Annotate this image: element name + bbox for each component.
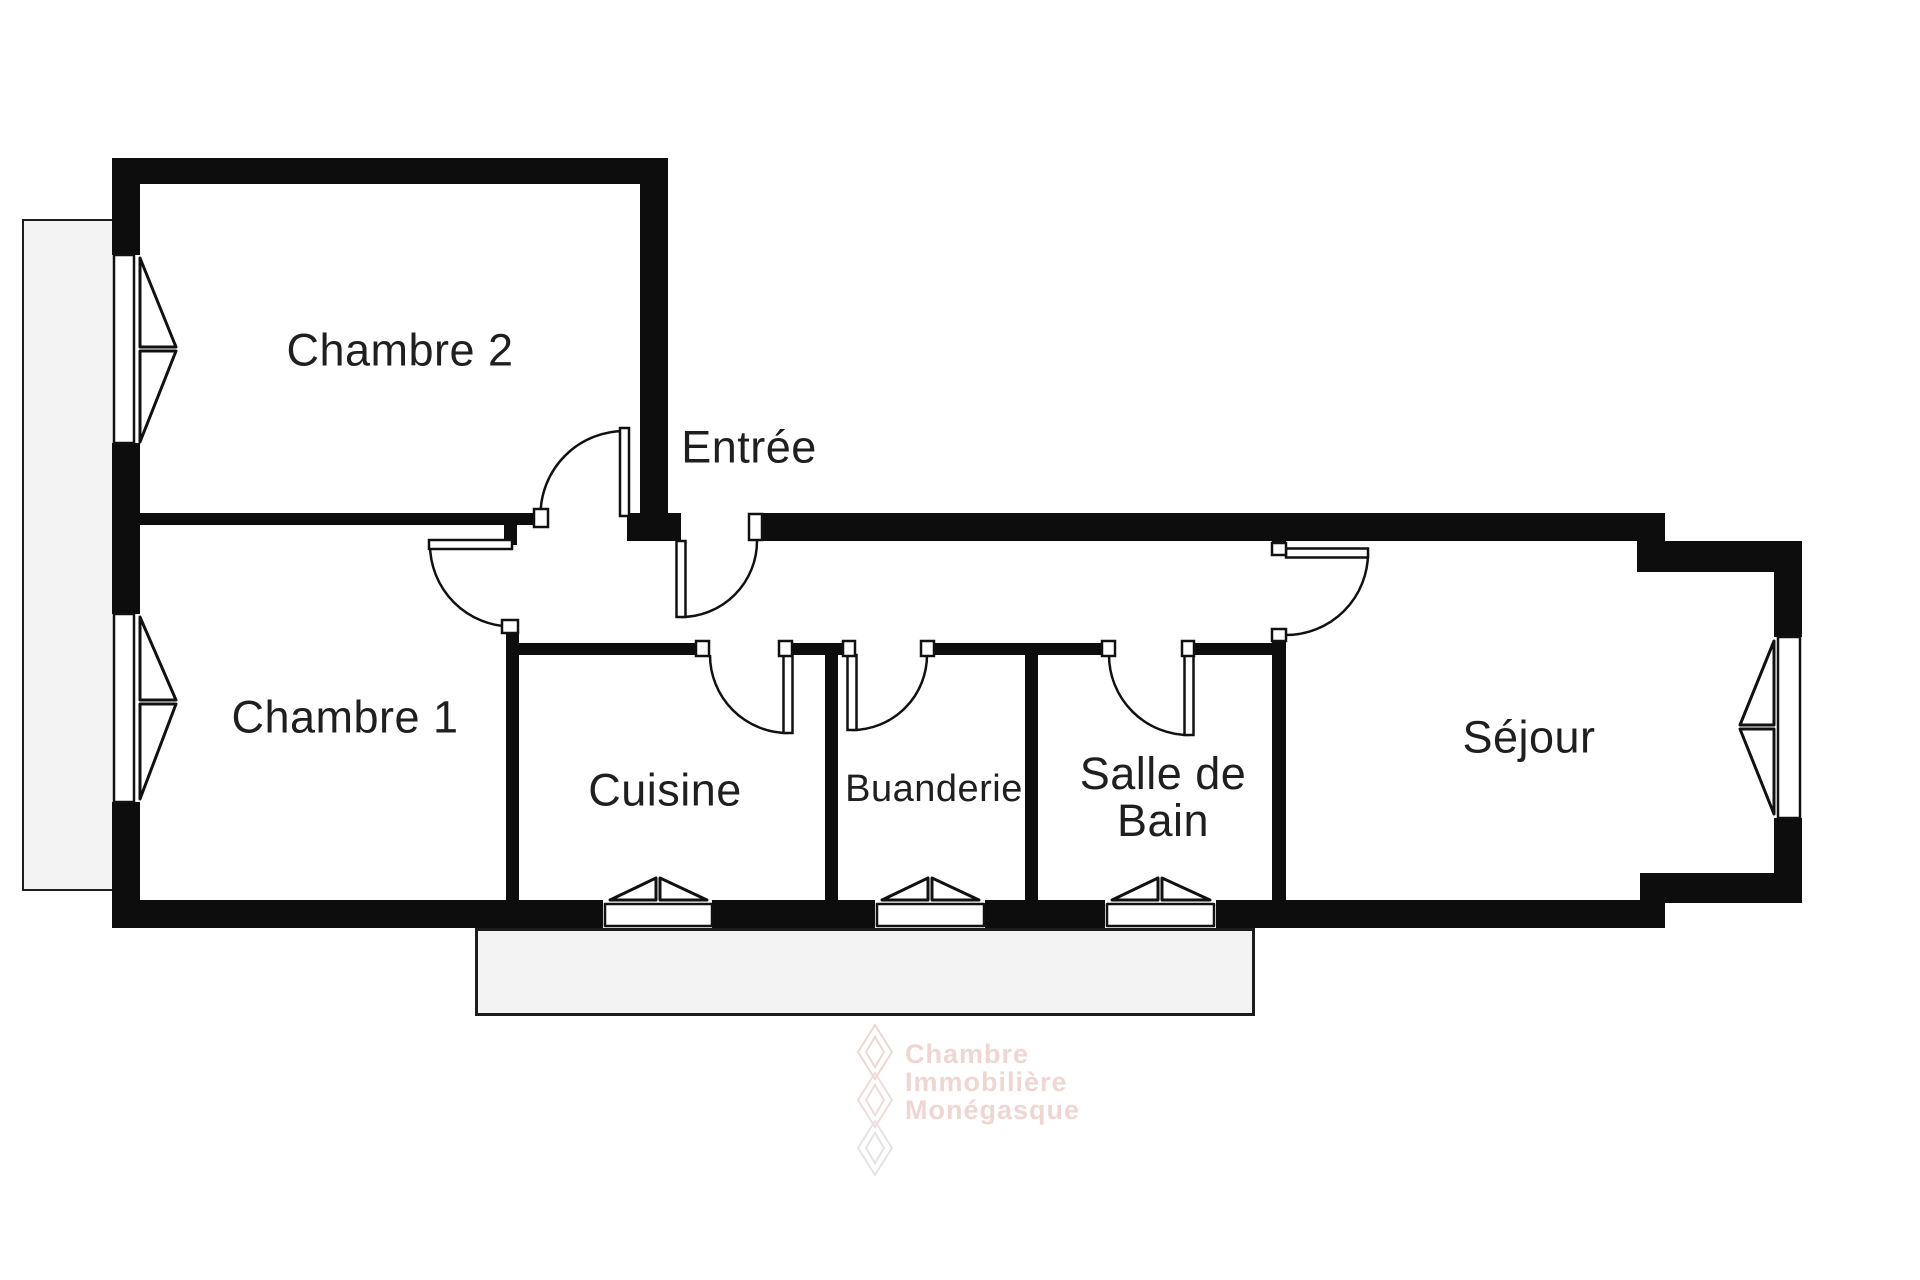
watermark-logo-icon <box>858 1025 892 1175</box>
door-buanderie <box>848 655 928 730</box>
room-label-buanderie: Buanderie <box>845 770 1023 808</box>
door-sejour <box>1286 549 1368 636</box>
window-chambre1 <box>114 614 176 802</box>
door-cuisine <box>710 655 793 733</box>
door-jambs <box>502 509 1286 656</box>
room-label-cuisine: Cuisine <box>588 768 742 813</box>
window-sejour <box>1740 637 1800 818</box>
door-chambre2 <box>541 428 630 516</box>
door-salle-de-bain <box>1109 655 1194 735</box>
window-cuisine <box>605 878 712 926</box>
room-label-entree: Entrée <box>681 425 817 470</box>
room-label-salle-de-bain: Salle de Bain <box>1080 750 1247 845</box>
door-chambre1 <box>429 540 512 627</box>
room-label-chambre2: Chambre 2 <box>286 328 513 373</box>
floor-plan: Chambre 2 Chambre 1 Entrée Cuisine Buand… <box>0 0 1920 1280</box>
watermark-text: Chambre Immobilière Monégasque <box>905 1040 1080 1124</box>
window-chambre2 <box>114 255 176 443</box>
door-entry <box>677 541 758 617</box>
window-salle-de-bain <box>1107 878 1214 926</box>
room-label-sejour: Séjour <box>1462 715 1595 760</box>
room-label-chambre1: Chambre 1 <box>231 695 458 740</box>
window-buanderie <box>877 878 984 926</box>
